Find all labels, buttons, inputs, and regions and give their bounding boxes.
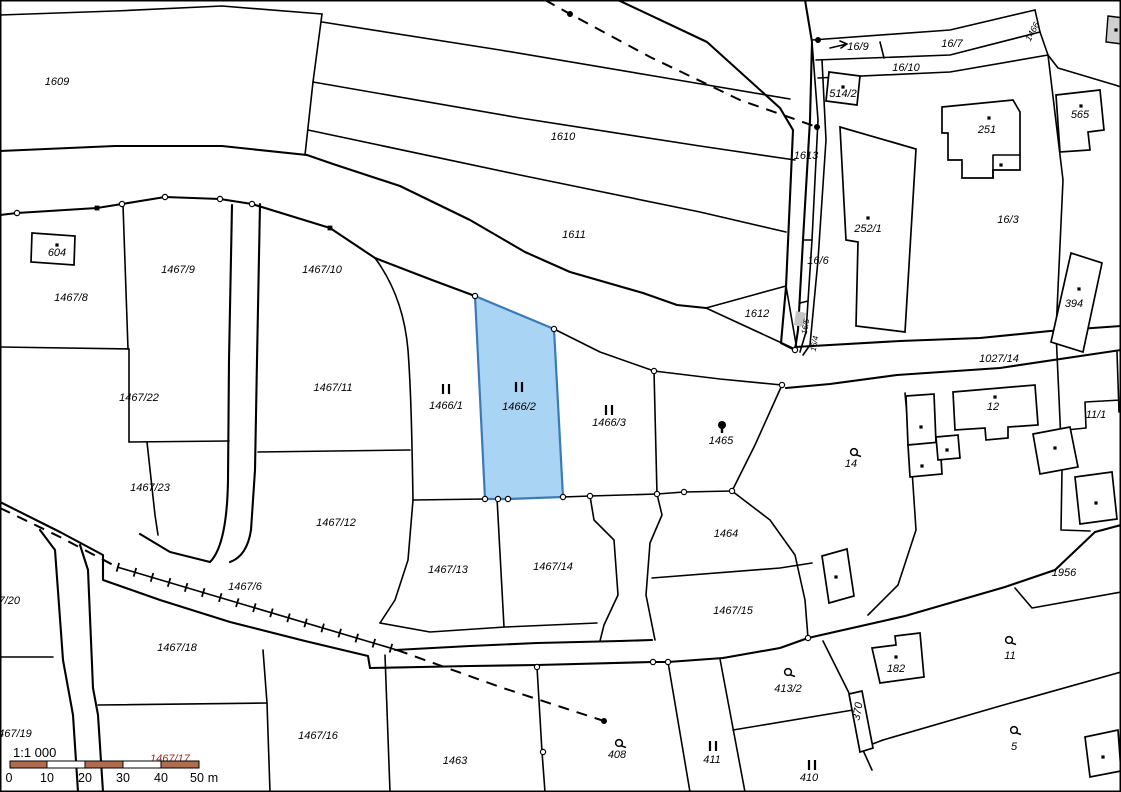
scale-unit: m bbox=[208, 771, 218, 785]
cadastral-map-view: 16091610161116/916/716/10514/21613252/12… bbox=[0, 0, 1121, 792]
boundary-vertex bbox=[14, 210, 19, 215]
parcel-label-411: 411 bbox=[703, 754, 721, 766]
building-182 bbox=[872, 633, 924, 683]
parcel-label-14: 14 bbox=[845, 458, 857, 470]
boundary-point bbox=[328, 226, 333, 231]
building-dot bbox=[987, 116, 990, 119]
building-dot bbox=[945, 448, 948, 451]
tree-icon bbox=[1011, 727, 1021, 735]
dashed-path-bottom-left bbox=[0, 508, 117, 567]
boundary-vertex bbox=[249, 201, 254, 206]
boundary-vertex bbox=[505, 496, 510, 501]
boundary-vertex bbox=[681, 489, 686, 494]
grassland-icon bbox=[710, 741, 716, 751]
building-dot bbox=[999, 163, 1002, 166]
parcel-label-1466-2: 1466/2 bbox=[502, 401, 536, 413]
building-dot bbox=[993, 395, 996, 398]
arrow-icon bbox=[830, 41, 847, 48]
building-dot bbox=[1094, 501, 1097, 504]
parcel-label-1463: 1463 bbox=[443, 755, 468, 767]
parcel-label-1467-14: 1467/14 bbox=[533, 561, 573, 573]
parcel-label-1467-19: 1467/19 bbox=[0, 728, 32, 740]
building-small-c bbox=[936, 435, 960, 460]
parcel-label-16-3: 16/3 bbox=[997, 214, 1019, 226]
building-small-f bbox=[822, 549, 854, 603]
boundary-vertex bbox=[551, 326, 556, 331]
boundary-vertex bbox=[217, 196, 222, 201]
parcel-label-1465: 1465 bbox=[709, 435, 734, 447]
parcel-label-1466-1: 1466/1 bbox=[429, 400, 463, 412]
boundary-vertex bbox=[792, 347, 797, 352]
building-top-right bbox=[1106, 16, 1121, 44]
path-endpoint-dot bbox=[814, 124, 820, 130]
scale-tick-40: 40 bbox=[154, 771, 168, 785]
parcel-label-16-6: 16/6 bbox=[807, 255, 829, 267]
grassland-icon bbox=[606, 405, 612, 415]
parcel-label-12: 12 bbox=[987, 401, 999, 413]
parcel-label-1467-6: 1467/6 bbox=[228, 581, 263, 593]
parcel-label-16-10: 16/10 bbox=[892, 62, 920, 74]
grassland-icon bbox=[443, 384, 449, 394]
parcel-label-604: 604 bbox=[48, 247, 66, 259]
scale-segment bbox=[161, 761, 199, 768]
parcel-label-182: 182 bbox=[887, 663, 905, 675]
boundary-vertex bbox=[651, 368, 656, 373]
parcel-label-413-2: 413/2 bbox=[774, 683, 802, 695]
parcel-label-1467-16: 1467/16 bbox=[298, 730, 339, 742]
boundary-vertex bbox=[587, 493, 592, 498]
boundary-point bbox=[95, 206, 100, 211]
building-251 bbox=[942, 100, 1020, 178]
cadastral-map-canvas: 16091610161116/916/716/10514/21613252/12… bbox=[0, 0, 1121, 792]
boundary-vertex bbox=[482, 496, 487, 501]
building-dot bbox=[1079, 104, 1082, 107]
building-dot bbox=[1114, 28, 1117, 31]
building-small-d bbox=[1033, 427, 1078, 474]
parcel-label-251: 251 bbox=[977, 124, 996, 136]
parcel-label-1467-18: 1467/18 bbox=[157, 642, 198, 654]
parcel-label-252-1: 252/1 bbox=[853, 223, 882, 235]
boundary-vertex bbox=[665, 659, 670, 664]
building-dot bbox=[1077, 287, 1080, 290]
tree-icon bbox=[785, 669, 795, 677]
parcel-label-1612: 1612 bbox=[745, 308, 769, 320]
parcel-label-410: 410 bbox=[800, 772, 819, 784]
tree-filled-icon bbox=[718, 421, 726, 433]
dashed-path-top bbox=[545, 0, 817, 127]
parcel-label-5: 5 bbox=[1011, 741, 1018, 753]
parcel-label-16-9: 16/9 bbox=[847, 41, 868, 53]
parcel-label-11-1: 11/1 bbox=[1086, 409, 1107, 421]
boundary-vertex bbox=[540, 749, 545, 754]
parcel-label-514-2: 514/2 bbox=[829, 88, 857, 100]
scale-segment bbox=[123, 761, 161, 768]
parcel-label-394: 394 bbox=[1065, 298, 1083, 310]
scale-bar: 1467/17 1:1 000 0 10 20 30 40 50 m bbox=[6, 745, 219, 785]
highlighted-parcel-1466-2[interactable] bbox=[475, 296, 563, 499]
building-dot bbox=[1053, 446, 1056, 449]
tree-icon bbox=[1006, 637, 1016, 645]
path-endpoint-dot bbox=[601, 718, 607, 724]
boundary-vertex bbox=[495, 496, 500, 501]
boundary-vertex bbox=[654, 491, 659, 496]
parcel-label-1467-11: 1467/11 bbox=[314, 382, 353, 394]
scale-segment bbox=[85, 761, 123, 768]
boundary-vertex bbox=[779, 382, 784, 387]
parcel-label-565: 565 bbox=[1071, 109, 1090, 121]
parcel-label-16-7: 16/7 bbox=[941, 38, 963, 50]
parcel-label-1467-13: 1467/13 bbox=[428, 564, 469, 576]
parcel-label-1464: 1464 bbox=[714, 528, 738, 540]
parcel-label-1467-8: 1467/8 bbox=[54, 292, 89, 304]
boundary-vertex bbox=[534, 664, 539, 669]
building-565 bbox=[1056, 90, 1104, 152]
parcel-label-1467-23: 1467/23 bbox=[130, 482, 171, 494]
boundary-vertex bbox=[162, 194, 167, 199]
building-dot bbox=[834, 575, 837, 578]
boundary-vertex bbox=[472, 293, 477, 298]
boundary-vertex bbox=[650, 659, 655, 664]
building-dot bbox=[919, 425, 922, 428]
scale-tick-20: 20 bbox=[78, 771, 92, 785]
scale-segment bbox=[10, 761, 47, 768]
scale-tick-10: 10 bbox=[40, 771, 54, 785]
parcel-label-1027-14: 1027/14 bbox=[979, 353, 1019, 365]
parcel-label-1609: 1609 bbox=[45, 76, 69, 88]
parcel-label-16-4: 16/4 bbox=[809, 335, 821, 352]
parcel-label-1467-22: 1467/22 bbox=[119, 392, 159, 404]
scale-segment bbox=[47, 761, 85, 768]
path-endpoint-dot bbox=[815, 37, 821, 43]
parcel-label-408: 408 bbox=[608, 749, 627, 761]
scale-ratio-label: 1:1 000 bbox=[13, 745, 56, 760]
scale-tick-0: 0 bbox=[6, 771, 13, 785]
tree-icon bbox=[616, 740, 626, 748]
building-dot bbox=[894, 655, 897, 658]
parcel-label-1467-10: 1467/10 bbox=[302, 264, 343, 276]
boundary-vertex bbox=[119, 201, 124, 206]
building-dot bbox=[920, 464, 923, 467]
parcel-label-1611: 1611 bbox=[562, 229, 586, 241]
parcel-label-16-5: 16/5 bbox=[800, 318, 812, 335]
tree-icon bbox=[851, 449, 861, 457]
boundary-vertex bbox=[560, 494, 565, 499]
parcel-label-11: 11 bbox=[1004, 650, 1015, 662]
boundary-vertex bbox=[805, 635, 810, 640]
scale-tick-30: 30 bbox=[116, 771, 130, 785]
building-small-a bbox=[906, 394, 936, 445]
boundary-vertex bbox=[729, 488, 734, 493]
scale-tick-50: 50 bbox=[190, 771, 204, 785]
dashed-path-bottom-right bbox=[397, 650, 604, 721]
grassland-icon bbox=[809, 760, 815, 770]
parcel-label-1467-9: 1467/9 bbox=[161, 264, 195, 276]
parcel-label-1613: 1613 bbox=[794, 150, 819, 162]
parcel-label-1466-3: 1466/3 bbox=[592, 417, 627, 429]
parcel-label-1956: 1956 bbox=[1052, 567, 1077, 579]
building-dot bbox=[866, 216, 869, 219]
building-small-e bbox=[1075, 472, 1117, 524]
buildings bbox=[31, 16, 1121, 777]
parcel-label-1610: 1610 bbox=[551, 131, 576, 143]
parcel-label-1467-20: 1467/20 bbox=[0, 595, 21, 607]
building-bottom-right bbox=[1085, 730, 1121, 777]
parcel-label-1467-15: 1467/15 bbox=[713, 605, 754, 617]
parcel-label-1467-12: 1467/12 bbox=[316, 517, 356, 529]
path-endpoint-dot bbox=[567, 11, 573, 17]
building-dot bbox=[1101, 755, 1104, 758]
